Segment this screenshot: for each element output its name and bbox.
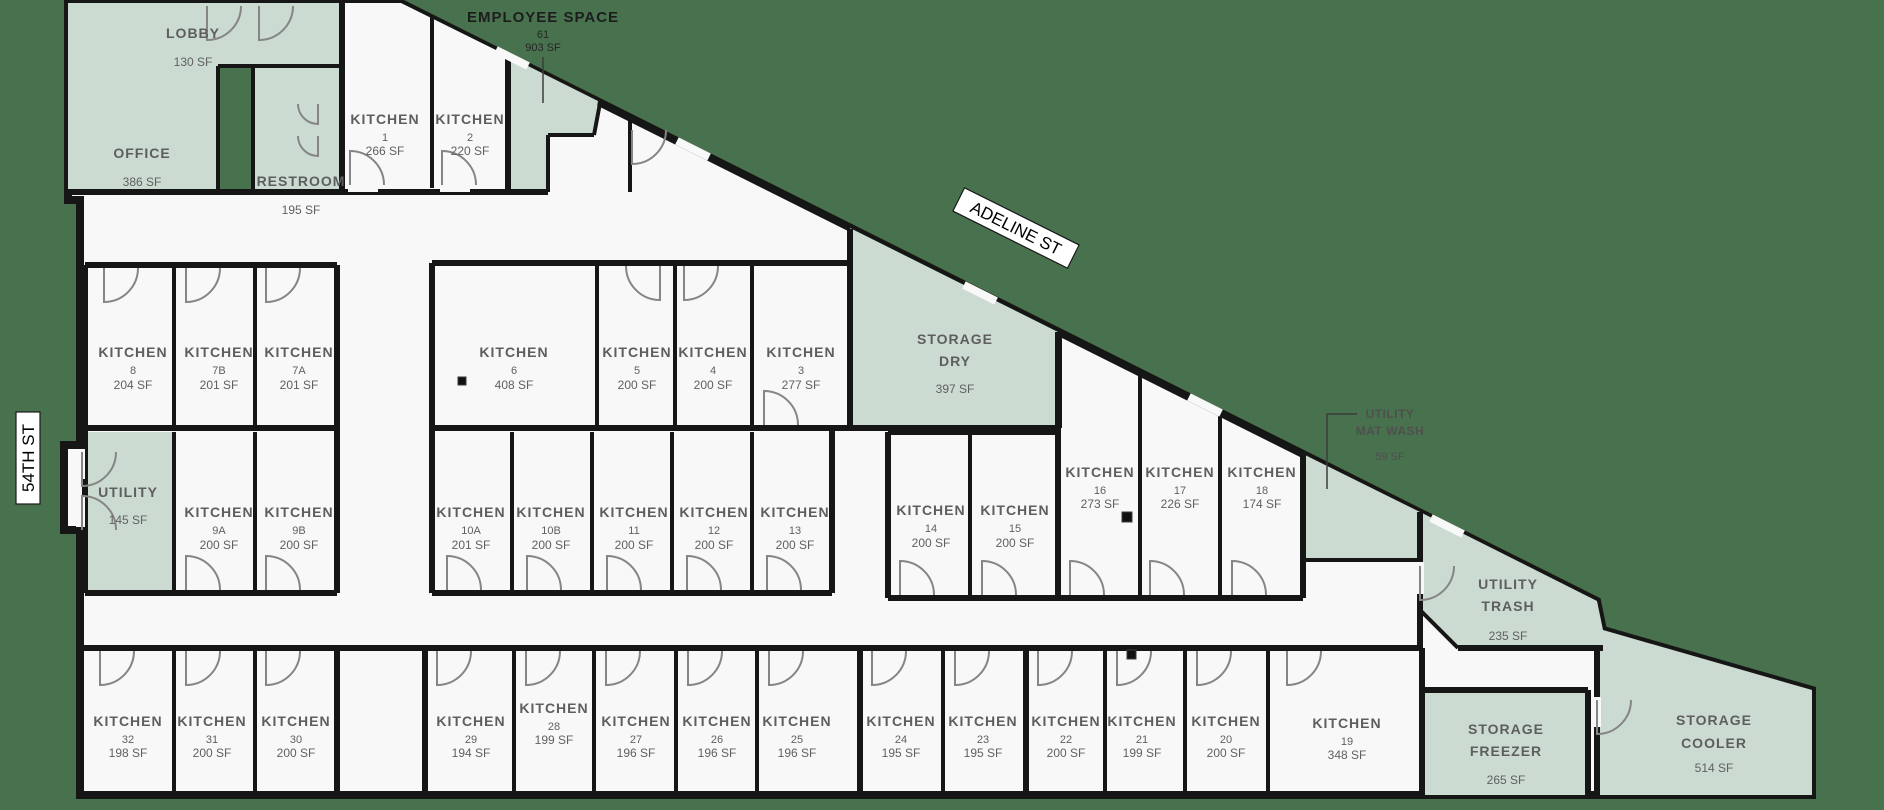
room-number: 61 [537, 29, 549, 41]
room-number: 14 [925, 523, 937, 535]
room-name: RESTROOM [257, 173, 346, 189]
room-number: 18 [1256, 485, 1268, 497]
room-area: 201 SF [200, 378, 239, 392]
room-area: 200 SF [776, 538, 815, 552]
room-number: 22 [1060, 734, 1072, 746]
room-number: 9A [212, 525, 226, 537]
room-number: 21 [1136, 734, 1148, 746]
room-area: 200 SF [200, 538, 239, 552]
room-number: 12 [708, 525, 720, 537]
floor-plan-page: LOBBY 130 SF OFFICE 386 SF RESTROOM 195 … [0, 0, 1884, 810]
room-number: 3 [798, 365, 804, 377]
room-number: 30 [290, 734, 302, 746]
room-area: 196 SF [698, 746, 737, 760]
room-number: 15 [1009, 523, 1021, 535]
floor-marker [458, 377, 466, 385]
room-name: KITCHEN [896, 502, 965, 518]
room-area: 408 SF [495, 378, 534, 392]
room-name: KITCHEN [948, 713, 1017, 729]
room-name: KITCHEN [1191, 713, 1260, 729]
room-name-line1: STORAGE [1676, 712, 1752, 728]
room-number: 10A [461, 525, 481, 537]
label-utility-mat-wash: UTILITY MAT WASH 59 SF [1356, 407, 1424, 463]
room-area: 200 SF [532, 538, 571, 552]
room-number: 24 [895, 734, 907, 746]
room-name: KITCHEN [519, 700, 588, 716]
room-number: 27 [630, 734, 642, 746]
room-name: KITCHEN [436, 713, 505, 729]
room-number: 26 [711, 734, 723, 746]
room-area: 200 SF [277, 746, 316, 760]
room-area: 397 SF [936, 382, 975, 396]
room-area: 195 SF [964, 746, 1003, 760]
room-area: 220 SF [451, 144, 490, 158]
room-number: 8 [130, 365, 136, 377]
room-name: KITCHEN [602, 344, 671, 360]
room-area: 348 SF [1328, 748, 1367, 762]
room-name-line2: FREEZER [1470, 743, 1542, 759]
rooms-kitchen-1-2 [340, 3, 508, 190]
room-number: 29 [465, 734, 477, 746]
room-area: 514 SF [1695, 761, 1734, 775]
room-name: KITCHEN [678, 344, 747, 360]
room-area: 145 SF [109, 513, 148, 527]
room-name: KITCHEN [1107, 713, 1176, 729]
room-name: KITCHEN [261, 713, 330, 729]
room-name: KITCHEN [980, 502, 1049, 518]
room-area: 59 SF [1375, 451, 1405, 463]
room-name: KITCHEN [436, 504, 505, 520]
room-area: 200 SF [615, 538, 654, 552]
room-number: 2 [467, 132, 473, 144]
room-area: 200 SF [695, 538, 734, 552]
room-area: 266 SF [366, 144, 405, 158]
room-name: KITCHEN [1145, 464, 1214, 480]
room-area: 199 SF [535, 733, 574, 747]
floor-plan-svg: LOBBY 130 SF OFFICE 386 SF RESTROOM 195 … [0, 0, 1884, 810]
room-number: 5 [634, 365, 640, 377]
room-name: KITCHEN [93, 713, 162, 729]
room-storage-dry [850, 228, 1060, 428]
room-number: 10B [541, 525, 561, 537]
room-area: 194 SF [452, 746, 491, 760]
room-number: 7A [292, 365, 306, 377]
room-area: 226 SF [1161, 497, 1200, 511]
room-name: KITCHEN [760, 504, 829, 520]
room-area: 200 SF [193, 746, 232, 760]
room-name: KITCHEN [1031, 713, 1100, 729]
room-name: KITCHEN [766, 344, 835, 360]
room-name: KITCHEN [264, 344, 333, 360]
room-number: 9B [292, 525, 305, 537]
room-number: 6 [511, 365, 517, 377]
room-number: 7B [212, 365, 225, 377]
room-name: UTILITY [98, 484, 158, 500]
room-area: 200 SF [694, 378, 733, 392]
street-label-54th: 54TH ST [16, 412, 40, 504]
room-name: KITCHEN [177, 713, 246, 729]
room-name-line2: MAT WASH [1356, 424, 1424, 438]
room-number: 1 [382, 132, 388, 144]
room-name: KITCHEN [866, 713, 935, 729]
room-area: 200 SF [280, 538, 319, 552]
room-number: 4 [710, 365, 716, 377]
room-name-line1: STORAGE [917, 331, 993, 347]
room-name: KITCHEN [435, 111, 504, 127]
room-number: 31 [206, 734, 218, 746]
room-area: 174 SF [1243, 497, 1282, 511]
room-area: 265 SF [1487, 773, 1526, 787]
room-number: 11 [628, 525, 639, 537]
courtyard-slot [220, 68, 251, 192]
room-name-line2: TRASH [1481, 598, 1534, 614]
room-area: 195 SF [282, 203, 321, 217]
room-name: KITCHEN [184, 504, 253, 520]
room-area: 204 SF [114, 378, 153, 392]
room-name: LOBBY [166, 25, 220, 41]
room-number: 16 [1094, 485, 1106, 497]
room-name: KITCHEN [1227, 464, 1296, 480]
room-name: KITCHEN [98, 344, 167, 360]
room-area: 235 SF [1489, 629, 1528, 643]
room-area: 196 SF [778, 746, 817, 760]
room-number: 19 [1341, 736, 1353, 748]
street-name: 54TH ST [19, 424, 38, 492]
room-name: KITCHEN [1312, 715, 1381, 731]
room-area: 201 SF [280, 378, 319, 392]
room-area: 277 SF [782, 378, 821, 392]
room-area: 200 SF [618, 378, 657, 392]
room-area: 273 SF [1081, 497, 1120, 511]
room-name-line1: UTILITY [1366, 407, 1415, 421]
room-name: OFFICE [113, 145, 170, 161]
room-area: 198 SF [109, 746, 148, 760]
room-number: 25 [791, 734, 803, 746]
room-area: 196 SF [617, 746, 656, 760]
room-area: 200 SF [912, 536, 951, 550]
room-name: KITCHEN [184, 344, 253, 360]
room-name: KITCHEN [479, 344, 548, 360]
room-name: KITCHEN [682, 713, 751, 729]
room-utility-mat-wash [1303, 454, 1420, 560]
room-number: 28 [548, 721, 560, 733]
room-name: KITCHEN [350, 111, 419, 127]
room-area: 903 SF [525, 42, 561, 54]
room-name: KITCHEN [264, 504, 333, 520]
room-area: 130 SF [174, 55, 213, 69]
room-name: KITCHEN [601, 713, 670, 729]
street-name: ADELINE ST [967, 198, 1064, 259]
room-area: 199 SF [1123, 746, 1162, 760]
room-number: 32 [122, 734, 134, 746]
floor-marker [1127, 650, 1136, 659]
room-number: 17 [1174, 485, 1186, 497]
room-number: 23 [977, 734, 989, 746]
room-name-line2: COOLER [1681, 735, 1747, 751]
room-name: KITCHEN [599, 504, 668, 520]
room-name: KITCHEN [762, 713, 831, 729]
room-number: 20 [1220, 734, 1232, 746]
street-label-adeline: ADELINE ST [953, 188, 1079, 268]
floor-marker [1122, 512, 1132, 522]
room-name: KITCHEN [1065, 464, 1134, 480]
room-area: 200 SF [1207, 746, 1246, 760]
room-area: 200 SF [1047, 746, 1086, 760]
room-name-line2: DRY [939, 353, 971, 369]
room-name: KITCHEN [516, 504, 585, 520]
room-name: EMPLOYEE SPACE [467, 9, 619, 26]
room-name: KITCHEN [679, 504, 748, 520]
room-area: 386 SF [123, 175, 162, 189]
room-number: 13 [789, 525, 801, 537]
room-name-line1: STORAGE [1468, 721, 1544, 737]
room-area: 201 SF [452, 538, 491, 552]
room-name-line1: UTILITY [1478, 576, 1538, 592]
room-area: 200 SF [996, 536, 1035, 550]
room-area: 195 SF [882, 746, 921, 760]
